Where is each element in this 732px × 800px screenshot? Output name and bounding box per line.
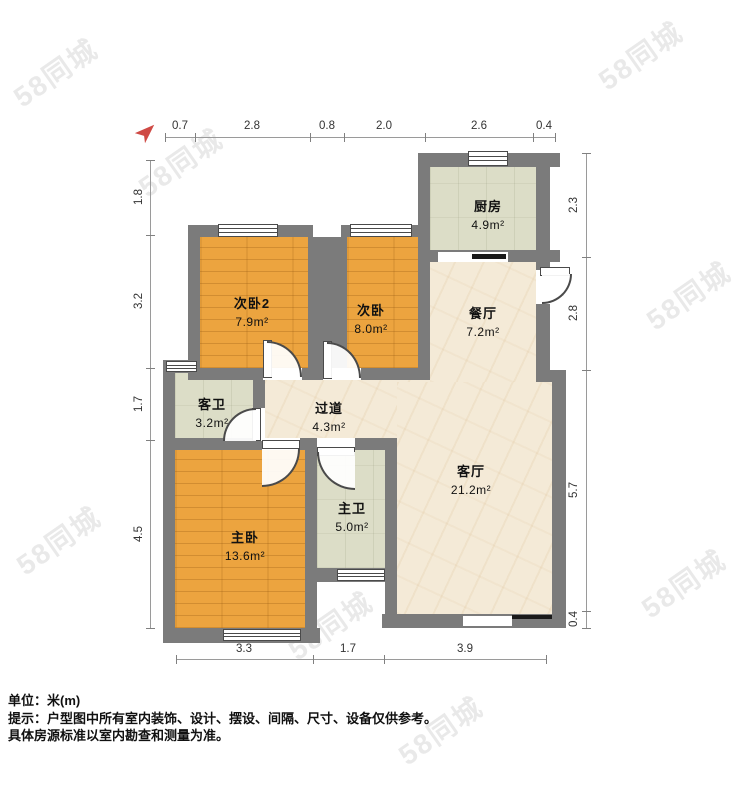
dim-tick [555, 133, 556, 142]
dim-tick [310, 133, 311, 142]
door-entry-arc [542, 274, 572, 304]
dim-tick [425, 133, 426, 142]
watermark: 58同城 [638, 251, 732, 338]
footer-note: 具体房源标准以室内勘查和测量为准。 [8, 727, 437, 745]
dim-top-0: 0.7 [172, 120, 188, 132]
dim-tick [195, 133, 196, 142]
room-label-hallway: 过道 4.3m² [312, 398, 345, 434]
north-arrow-icon [133, 122, 157, 146]
dim-tick [384, 655, 385, 664]
floor-living [397, 382, 552, 614]
room-label-bedroom2: 次卧2 7.9m² [234, 293, 270, 329]
room-name: 主卧 [225, 527, 265, 546]
room-name: 主卫 [335, 498, 368, 517]
window-kitchen [468, 151, 508, 166]
room-name: 次卧2 [234, 293, 270, 312]
wall [188, 368, 430, 380]
room-name: 客厅 [451, 461, 491, 480]
room-area: 3.2m² [195, 416, 228, 430]
dim-line-bottom [176, 659, 546, 660]
dim-bottom-1: 1.7 [340, 643, 356, 655]
dim-tick [146, 368, 155, 369]
wall [385, 438, 397, 628]
room-area: 5.0m² [335, 520, 368, 534]
dim-tick [146, 160, 155, 161]
dim-line-left [150, 160, 151, 628]
dim-right-3: 0.4 [568, 611, 580, 627]
dim-bottom-2: 3.9 [457, 643, 473, 655]
watermark: 58同城 [590, 11, 691, 98]
dim-tick [582, 257, 591, 258]
footer-disclaimer: 单位：米(m) 提示：户型图中所有室内装饰、设计、摆设、间隔、尺寸、设备仅供参考… [8, 692, 437, 745]
watermark: 58同城 [633, 539, 732, 626]
living-window-panel [512, 615, 552, 619]
dim-tick [313, 655, 314, 664]
dim-line-right [586, 153, 587, 628]
footer-tip: 提示：户型图中所有室内装饰、设计、摆设、间隔、尺寸、设备仅供参考。 [8, 710, 437, 728]
wall [188, 225, 200, 380]
dim-right-1: 2.8 [568, 305, 580, 321]
window-master-bedroom [223, 629, 301, 641]
dim-right-0: 2.3 [568, 197, 580, 213]
dim-top-3: 2.0 [376, 120, 392, 132]
room-label-bedroom: 次卧 8.0m² [354, 300, 387, 336]
wall [536, 153, 550, 372]
dim-tick [146, 235, 155, 236]
dim-tick [176, 655, 177, 664]
room-name: 过道 [312, 398, 345, 417]
dim-tick [582, 611, 591, 612]
dim-tick [582, 628, 591, 629]
window-bedroom2 [218, 224, 278, 237]
kitchen-slider-panel [472, 254, 506, 259]
room-area: 8.0m² [354, 322, 387, 336]
dim-tick [533, 133, 534, 142]
dim-tick [582, 370, 591, 371]
room-area: 4.9m² [471, 218, 504, 232]
room-label-dining: 餐厅 7.2m² [466, 303, 499, 339]
room-name: 次卧 [354, 300, 387, 319]
dim-line-top [165, 137, 555, 138]
dim-top-2: 0.8 [319, 120, 335, 132]
dim-top-4: 2.6 [471, 120, 487, 132]
door-master-bedroom-leaf [262, 440, 300, 449]
room-area: 7.2m² [466, 325, 499, 339]
room-area: 21.2m² [451, 483, 491, 497]
dim-top-5: 0.4 [536, 120, 552, 132]
living-balcony-opening [463, 616, 512, 626]
wall [305, 438, 317, 643]
wall-notch [313, 225, 341, 237]
dim-left-3: 4.5 [133, 526, 145, 542]
room-label-kitchen: 厨房 4.9m² [471, 196, 504, 232]
dim-tick [582, 153, 591, 154]
window-guest-bath [166, 361, 197, 372]
watermark: 58同城 [8, 496, 109, 583]
wall [418, 237, 430, 380]
dim-tick [146, 628, 155, 629]
wall [163, 360, 175, 643]
room-area: 4.3m² [312, 420, 345, 434]
room-name: 餐厅 [466, 303, 499, 322]
room-name: 厨房 [471, 196, 504, 215]
dim-left-2: 1.7 [133, 396, 145, 412]
footer-unit: 单位：米(m) [8, 692, 437, 710]
dim-bottom-0: 3.3 [236, 643, 252, 655]
dim-tick [146, 440, 155, 441]
room-name: 客卫 [195, 394, 228, 413]
dim-top-1: 2.8 [244, 120, 260, 132]
dim-right-2: 5.7 [568, 482, 580, 498]
dim-tick [165, 133, 166, 142]
room-area: 7.9m² [234, 315, 270, 329]
room-label-master-bath: 主卫 5.0m² [335, 498, 368, 534]
floorplan-canvas: 58同城 58同城 58同城 58同城 58同城 58同城 58同城 58同城 … [0, 0, 732, 800]
dim-tick [546, 655, 547, 664]
wall [552, 370, 566, 628]
room-label-guest-bath: 客卫 3.2m² [195, 394, 228, 430]
window-bedroom [350, 224, 412, 237]
dim-tick [344, 133, 345, 142]
room-label-living: 客厅 21.2m² [451, 461, 491, 497]
watermark: 58同城 [5, 28, 106, 115]
room-area: 13.6m² [225, 549, 265, 563]
dim-left-0: 1.8 [133, 189, 145, 205]
dim-left-1: 3.2 [133, 293, 145, 309]
room-label-master-bedroom: 主卧 13.6m² [225, 527, 265, 563]
window-master-bath [337, 569, 385, 581]
